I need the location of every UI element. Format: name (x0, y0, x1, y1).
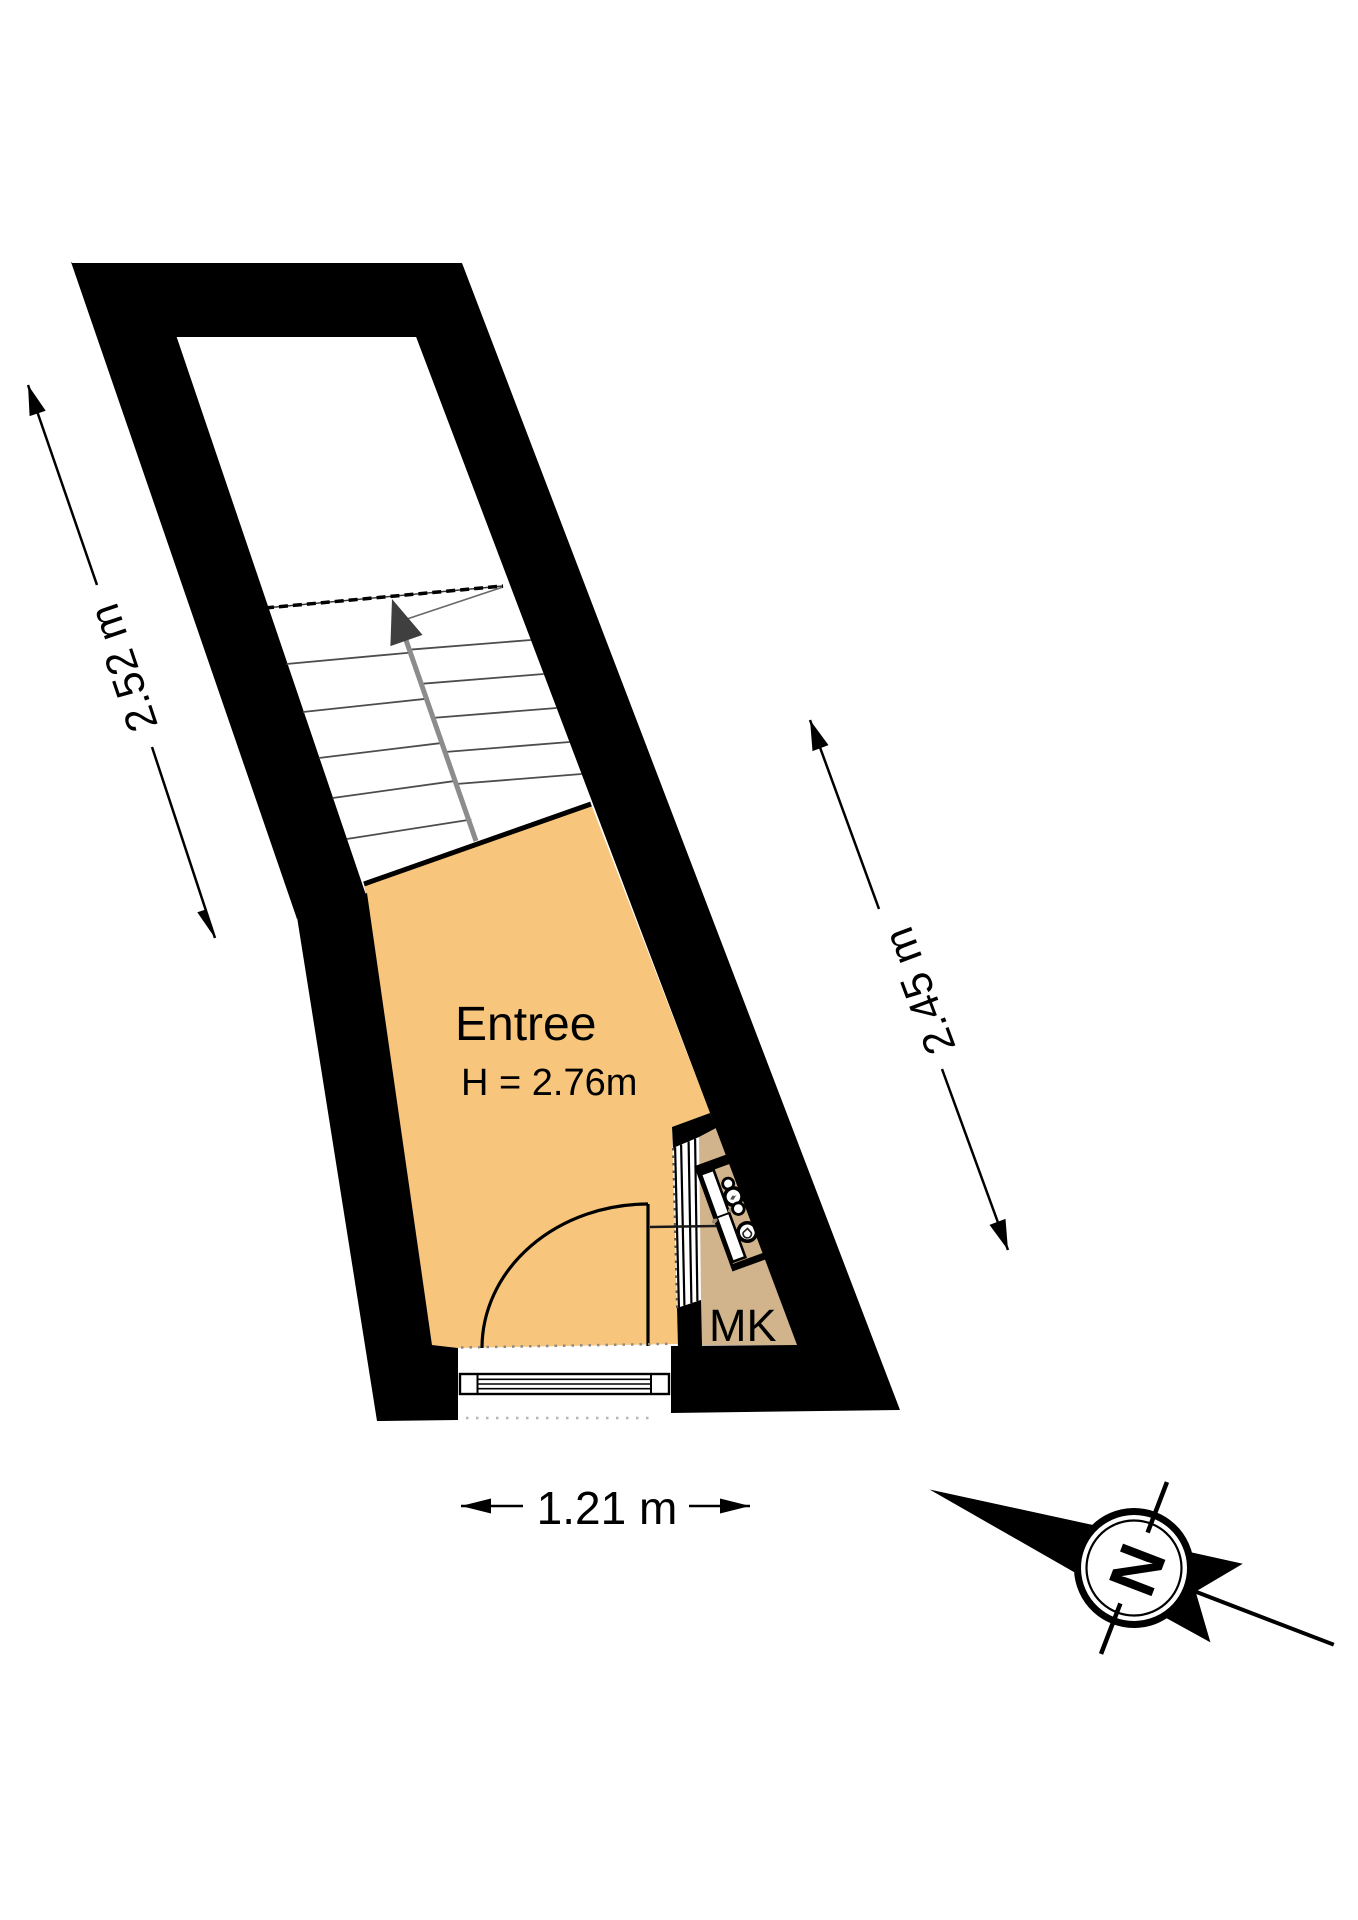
svg-text:1.21 m: 1.21 m (537, 1482, 678, 1534)
svg-text:MK: MK (709, 1300, 777, 1351)
svg-text:2.52 m: 2.52 m (80, 598, 168, 738)
svg-text:H = 2.76m: H = 2.76m (461, 1062, 637, 1104)
svg-text:Entree: Entree (455, 998, 596, 1051)
svg-text:2.45 m: 2.45 m (874, 921, 965, 1061)
